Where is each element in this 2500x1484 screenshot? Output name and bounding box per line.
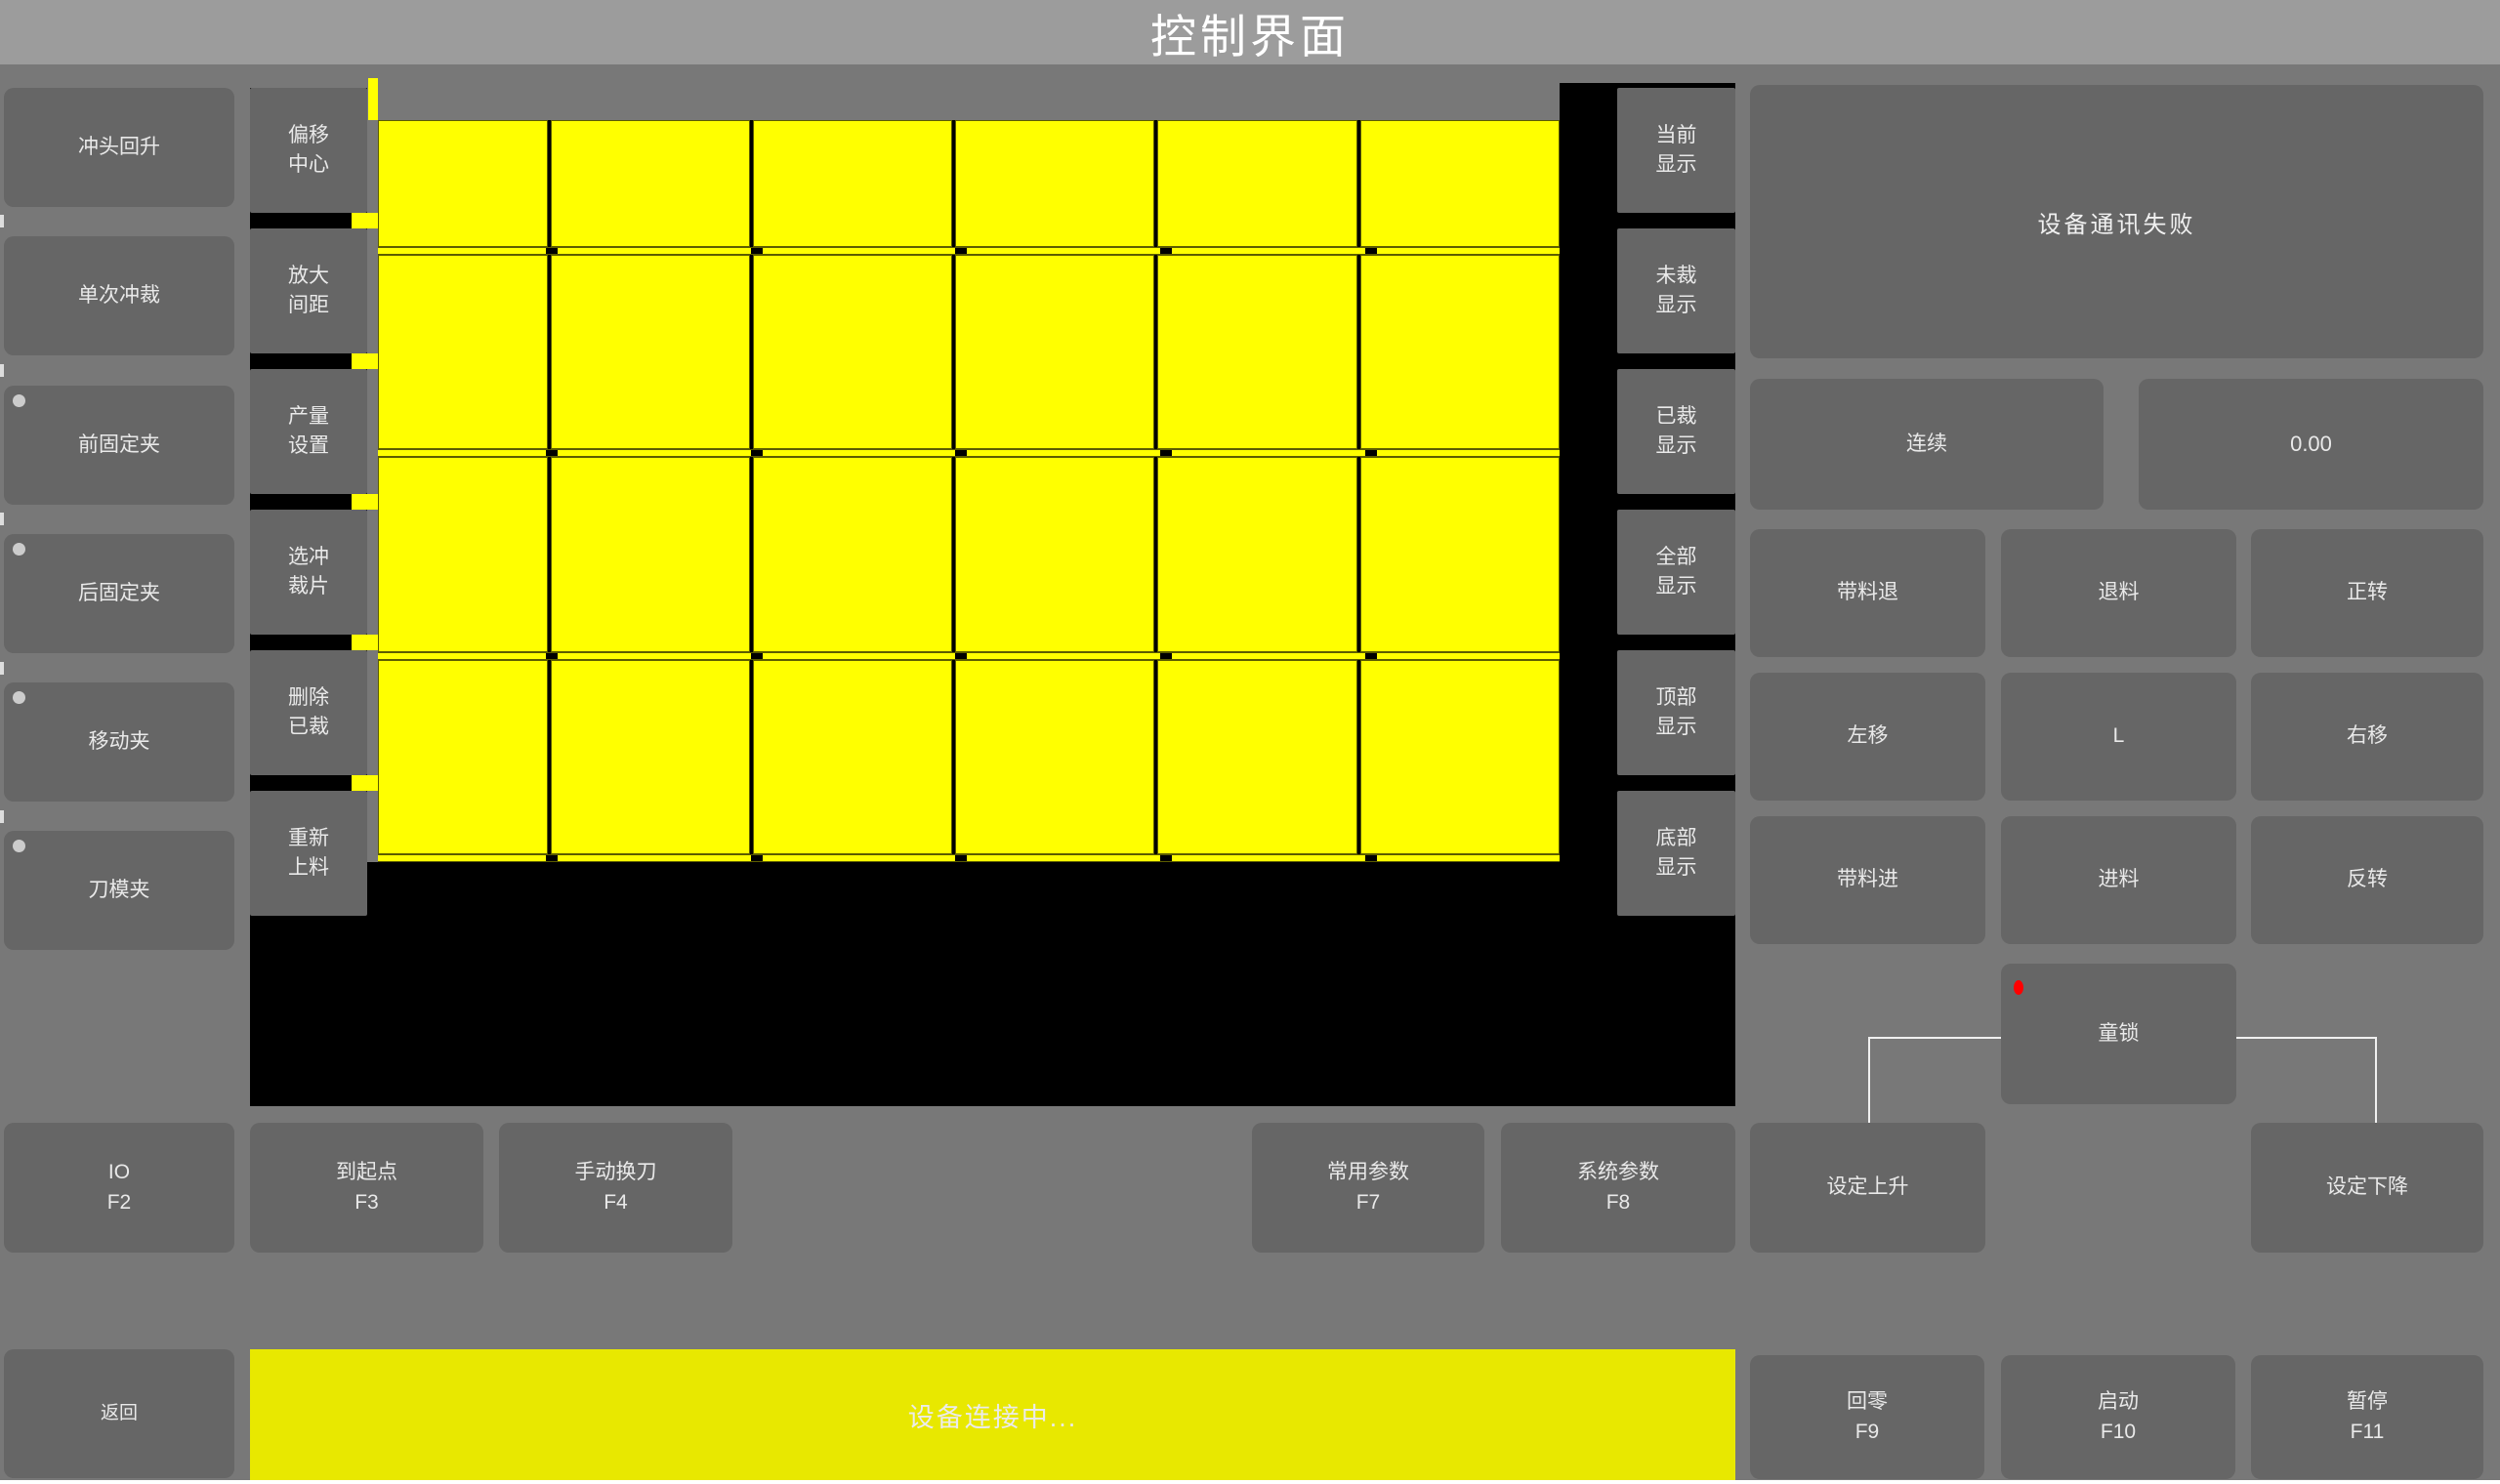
button-fkey: F10 <box>2101 1418 2136 1447</box>
punch-return-button[interactable]: 冲头回升 <box>4 88 234 207</box>
row-band <box>378 247 1560 255</box>
button-label: 连续 <box>1906 430 1947 459</box>
button-label: 显示 <box>1656 432 1697 461</box>
button-label: 暂停 <box>2347 1387 2388 1417</box>
piece-row <box>378 457 1560 652</box>
grid-piece[interactable] <box>955 255 1154 449</box>
button-label: 正转 <box>2347 578 2388 607</box>
button-label: 设置 <box>288 432 329 461</box>
band-notch <box>1160 653 1172 659</box>
grid-piece[interactable] <box>378 255 548 449</box>
grid-piece[interactable] <box>753 660 951 854</box>
grid-piece[interactable] <box>1157 120 1356 247</box>
set-rise-button[interactable]: 设定上升 <box>1750 1123 1985 1253</box>
die-clamp-button[interactable]: 刀模夹 <box>4 831 234 950</box>
grid-piece[interactable] <box>955 660 1154 854</box>
button-label: 上料 <box>288 853 329 883</box>
value-text: 0.00 <box>2290 429 2332 460</box>
feed-material-button[interactable]: 进料 <box>2001 816 2236 944</box>
button-label: 带料进 <box>1837 865 1898 894</box>
button-label: 左移 <box>1848 721 1889 751</box>
grid-piece[interactable] <box>1360 120 1560 247</box>
value-display[interactable]: 0.00 <box>2139 379 2483 510</box>
grid-piece[interactable] <box>1360 457 1560 652</box>
band-notch <box>546 248 558 254</box>
show-uncut-button[interactable]: 未裁 显示 <box>1617 228 1735 353</box>
control-screen: 控制界面 冲头回升 单次冲裁 前固定夹 后固定夹 移动夹 刀模夹 偏移 中 <box>0 0 2500 1484</box>
band-notch <box>751 248 763 254</box>
grid-piece[interactable] <box>1157 255 1356 449</box>
feed-in-with-material-button[interactable]: 带料进 <box>1750 816 1985 944</box>
grid-piece[interactable] <box>378 120 548 247</box>
reload-material-button[interactable]: 重新 上料 <box>250 791 367 916</box>
canvas-left-tab <box>352 353 378 369</box>
mode-continuous-button[interactable]: 连续 <box>1750 379 2104 510</box>
band-notch <box>1365 855 1377 861</box>
row-band <box>378 854 1560 862</box>
piece-row <box>378 255 1560 449</box>
button-label: 顶部 <box>1656 683 1697 713</box>
band-notch <box>1365 653 1377 659</box>
button-label: IO <box>108 1158 130 1187</box>
left-edge-tick <box>0 513 4 525</box>
set-lower-button[interactable]: 设定下降 <box>2251 1123 2483 1253</box>
bracket-line-horizontal-right <box>2236 1037 2377 1039</box>
button-label: 刀模夹 <box>89 876 150 905</box>
button-label: 重新 <box>288 824 329 853</box>
row-band <box>378 449 1560 457</box>
button-label: 带料退 <box>1837 578 1898 607</box>
manual-tool-change-f4-button[interactable]: 手动换刀 F4 <box>499 1123 732 1253</box>
button-label: 反转 <box>2347 865 2388 894</box>
left-edge-tick <box>0 364 4 377</box>
grid-piece[interactable] <box>753 120 951 247</box>
button-label: 单次冲裁 <box>78 281 160 310</box>
button-label: 放大 <box>288 262 329 291</box>
piece-row <box>378 120 1560 247</box>
moving-clamp-button[interactable]: 移动夹 <box>4 682 234 802</box>
reverse-rotation-button[interactable]: 反转 <box>2251 816 2483 944</box>
grid-piece[interactable] <box>1360 255 1560 449</box>
yield-settings-button[interactable]: 产量 设置 <box>250 369 367 494</box>
front-clamp-button[interactable]: 前固定夹 <box>4 386 234 505</box>
canvas-left-tab <box>352 494 378 510</box>
forward-rotation-button[interactable]: 正转 <box>2251 529 2483 657</box>
move-left-button[interactable]: 左移 <box>1750 673 1985 801</box>
button-fkey: F7 <box>1356 1188 1381 1217</box>
title-bar: 控制界面 <box>0 0 2500 64</box>
button-label: L <box>2113 721 2125 751</box>
band-notch <box>1365 450 1377 456</box>
to-origin-f3-button[interactable]: 到起点 F3 <box>250 1123 483 1253</box>
band-notch <box>1160 855 1172 861</box>
band-notch <box>751 653 763 659</box>
button-label: 回零 <box>1847 1387 1888 1417</box>
band-notch <box>1365 248 1377 254</box>
button-label: 冲头回升 <box>78 133 160 162</box>
state-indicator-dot <box>13 543 25 556</box>
band-notch <box>751 450 763 456</box>
bracket-line-horizontal-left <box>1868 1037 2003 1039</box>
grid-piece[interactable] <box>753 255 951 449</box>
rear-clamp-button[interactable]: 后固定夹 <box>4 534 234 653</box>
button-label: 右移 <box>2347 721 2388 751</box>
offset-center-button[interactable]: 偏移 中心 <box>250 88 367 213</box>
button-label: 中心 <box>288 150 329 180</box>
window-bottom-edge <box>0 1480 2500 1484</box>
button-label: 童锁 <box>2099 1019 2140 1049</box>
show-top-button[interactable]: 顶部 显示 <box>1617 650 1735 775</box>
button-label: 手动换刀 <box>575 1158 657 1187</box>
band-notch <box>546 855 558 861</box>
grid-piece[interactable] <box>378 660 548 854</box>
io-f2-button[interactable]: IO F2 <box>4 1123 234 1253</box>
state-indicator-dot <box>13 691 25 704</box>
button-label: 当前 <box>1656 121 1697 150</box>
state-indicator-dot <box>13 394 25 407</box>
button-label: 已裁 <box>288 713 329 742</box>
grid-piece[interactable] <box>551 120 750 247</box>
bracket-line-vertical-right <box>2375 1037 2377 1125</box>
button-label: 底部 <box>1656 824 1697 853</box>
button-label: 启动 <box>2098 1387 2139 1417</box>
page-title: 控制界面 <box>1150 0 1350 66</box>
connection-status-text: 设备连接中... <box>908 1396 1078 1434</box>
pause-f11-button[interactable]: 暂停 F11 <box>2251 1355 2483 1479</box>
grid-piece[interactable] <box>955 457 1154 652</box>
start-f10-button[interactable]: 启动 F10 <box>2001 1355 2235 1479</box>
show-current-button[interactable]: 当前 显示 <box>1617 88 1735 213</box>
button-label: 进料 <box>2099 865 2140 894</box>
button-label: 常用参数 <box>1327 1158 1409 1187</box>
grid-piece[interactable] <box>551 660 750 854</box>
button-label: 返回 <box>101 1400 138 1427</box>
button-label: 未裁 <box>1656 262 1697 291</box>
button-label: 间距 <box>288 291 329 320</box>
canvas-top-left-mark <box>368 78 378 120</box>
grid-piece[interactable] <box>1157 457 1356 652</box>
show-all-button[interactable]: 全部 显示 <box>1617 510 1735 635</box>
button-label: 产量 <box>288 402 329 432</box>
grid-piece[interactable] <box>753 457 951 652</box>
grid-piece[interactable] <box>551 457 750 652</box>
delete-cut-button[interactable]: 删除 已裁 <box>250 650 367 775</box>
button-label: 系统参数 <box>1577 1158 1659 1187</box>
state-indicator-dot <box>13 840 25 852</box>
button-label: 显示 <box>1656 150 1697 180</box>
system-params-f8-button[interactable]: 系统参数 F8 <box>1501 1123 1735 1253</box>
row-band <box>378 652 1560 660</box>
button-fkey: F4 <box>604 1188 628 1217</box>
band-notch <box>955 653 967 659</box>
button-label: 退料 <box>2099 578 2140 607</box>
select-piece-button[interactable]: 选冲 裁片 <box>250 510 367 635</box>
home-f9-button[interactable]: 回零 F9 <box>1750 1355 1984 1479</box>
button-label: 已裁 <box>1656 402 1697 432</box>
left-edge-tick <box>0 662 4 675</box>
button-label: 到起点 <box>336 1158 397 1187</box>
l-button[interactable]: L <box>2001 673 2236 801</box>
band-notch <box>1160 248 1172 254</box>
button-fkey: F8 <box>1606 1188 1631 1217</box>
button-fkey: F2 <box>107 1188 132 1217</box>
band-notch <box>546 450 558 456</box>
child-lock-button[interactable]: 童锁 <box>2001 964 2236 1104</box>
band-notch <box>1160 450 1172 456</box>
device-message-text: 设备通讯失败 <box>2038 205 2196 239</box>
left-edge-tick <box>0 215 4 227</box>
button-fkey: F11 <box>2351 1418 2385 1447</box>
left-edge-tick <box>0 810 4 823</box>
grid-piece[interactable] <box>955 120 1154 247</box>
button-label: 显示 <box>1656 713 1697 742</box>
single-punch-button[interactable]: 单次冲裁 <box>4 236 234 355</box>
canvas-bottom-black <box>250 862 1735 1106</box>
button-label: 移动夹 <box>89 727 150 757</box>
button-label: 显示 <box>1656 291 1697 320</box>
button-label: 前固定夹 <box>78 431 160 460</box>
canvas-left-tab <box>352 213 378 228</box>
button-label: 全部 <box>1656 543 1697 572</box>
bracket-line-vertical-left <box>1868 1037 1870 1125</box>
child-lock-red-indicator <box>2014 980 2023 995</box>
button-label: 裁片 <box>288 572 329 601</box>
piece-row <box>378 660 1560 854</box>
button-label: 设定下降 <box>2326 1173 2408 1202</box>
pieces-grid[interactable] <box>378 120 1560 862</box>
zoom-spacing-button[interactable]: 放大 间距 <box>250 228 367 353</box>
band-notch <box>955 248 967 254</box>
grid-piece[interactable] <box>551 255 750 449</box>
grid-piece[interactable] <box>1157 660 1356 854</box>
device-message-box: 设备通讯失败 <box>1750 85 2483 358</box>
button-label: 偏移 <box>288 121 329 150</box>
common-params-f7-button[interactable]: 常用参数 F7 <box>1252 1123 1484 1253</box>
canvas-left-tab <box>352 775 378 791</box>
canvas-left-tab <box>352 635 378 650</box>
retract-material-button[interactable]: 退料 <box>2001 529 2236 657</box>
button-label: 选冲 <box>288 543 329 572</box>
show-cut-button[interactable]: 已裁 显示 <box>1617 369 1735 494</box>
button-fkey: F9 <box>1855 1418 1880 1447</box>
grid-piece[interactable] <box>1360 660 1560 854</box>
connection-status-bar: 设备连接中... <box>250 1349 1735 1480</box>
feed-back-with-material-button[interactable]: 带料退 <box>1750 529 1985 657</box>
show-bottom-button[interactable]: 底部 显示 <box>1617 791 1735 916</box>
button-label: 显示 <box>1656 572 1697 601</box>
button-label: 删除 <box>288 683 329 713</box>
button-label: 显示 <box>1656 853 1697 883</box>
button-fkey: F3 <box>354 1188 379 1217</box>
move-right-button[interactable]: 右移 <box>2251 673 2483 801</box>
button-label: 设定上升 <box>1827 1173 1909 1202</box>
band-notch <box>546 653 558 659</box>
button-label: 后固定夹 <box>78 579 160 608</box>
band-notch <box>955 450 967 456</box>
band-notch <box>955 855 967 861</box>
grid-piece[interactable] <box>378 457 548 652</box>
band-notch <box>751 855 763 861</box>
back-button[interactable]: 返回 <box>4 1349 234 1478</box>
